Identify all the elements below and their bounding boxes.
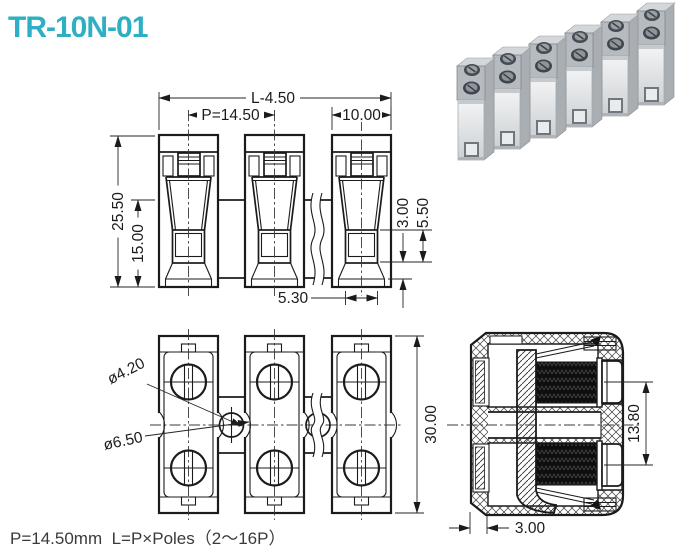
dim-overall-length: L-4.50 (251, 90, 295, 107)
front-view: L-4.50 P=14.50 10.00 25.50 (110, 90, 432, 308)
dim-overall-height: 25.50 (110, 192, 127, 231)
dim-lead-in-depth: 3.00 (395, 198, 412, 229)
section-view: 13.80 3.00 (447, 333, 653, 537)
dim-lower-height: 15.00 (130, 224, 147, 263)
plan-view: 30.00 ø4.20 ø6.50 (102, 329, 440, 520)
front-view-linework (159, 110, 391, 296)
dim-wire-slot-height: 5.50 (415, 198, 432, 229)
section-view-linework (447, 333, 640, 515)
product-photo (457, 3, 675, 160)
dim-unit-width: 10.00 (342, 107, 381, 124)
dim-pitch: P=14.50 (201, 107, 260, 124)
dim-screw-center-height: 13.80 (626, 404, 643, 443)
dim-screw-hole-dia: ø4.20 (105, 355, 148, 388)
datasheet-page: TR-10N-01 (0, 0, 694, 558)
dim-wire-slot-width: 5.30 (278, 290, 309, 307)
pitch-note: P=14.50mm L=P×Poles（2～16P） (10, 524, 285, 549)
dim-mount-hole-dia: ø6.50 (102, 429, 145, 454)
plan-view-linework (150, 329, 402, 520)
dim-depth: 30.00 (423, 405, 440, 444)
dim-wall-thickness: 3.00 (515, 520, 546, 537)
drawing-canvas: L-4.50 P=14.50 10.00 25.50 (0, 0, 694, 558)
